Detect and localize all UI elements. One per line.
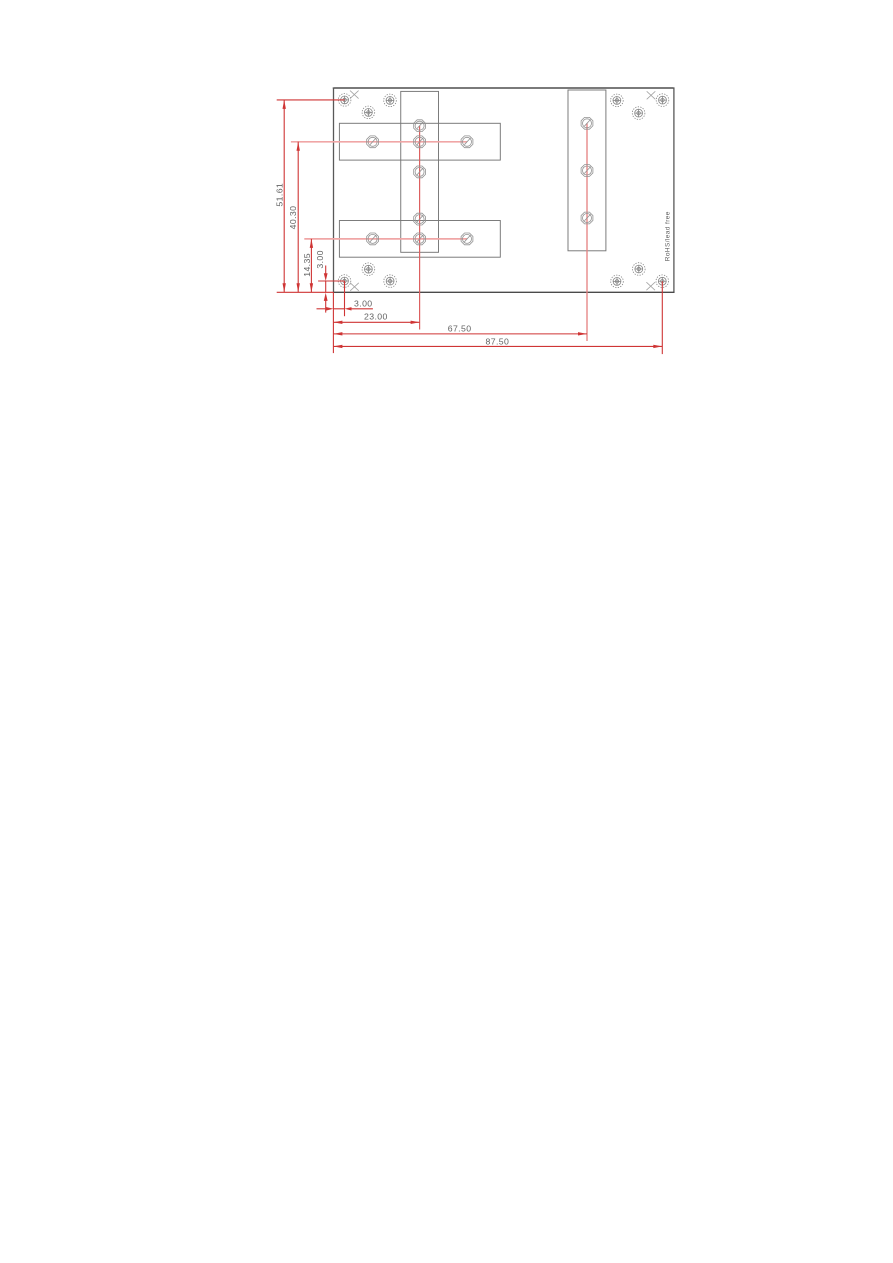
svg-text:14.35: 14.35 [302,253,312,277]
svg-text:23.00: 23.00 [364,312,388,322]
svg-text:51.61: 51.61 [275,183,285,207]
svg-text:87.50: 87.50 [486,336,510,346]
svg-text:40.30: 40.30 [288,206,298,230]
svg-text:RoHS/lead free: RoHS/lead free [664,211,671,261]
svg-text:3.00: 3.00 [315,250,325,269]
svg-text:3.00: 3.00 [354,298,373,308]
svg-text:67.50: 67.50 [448,323,472,333]
